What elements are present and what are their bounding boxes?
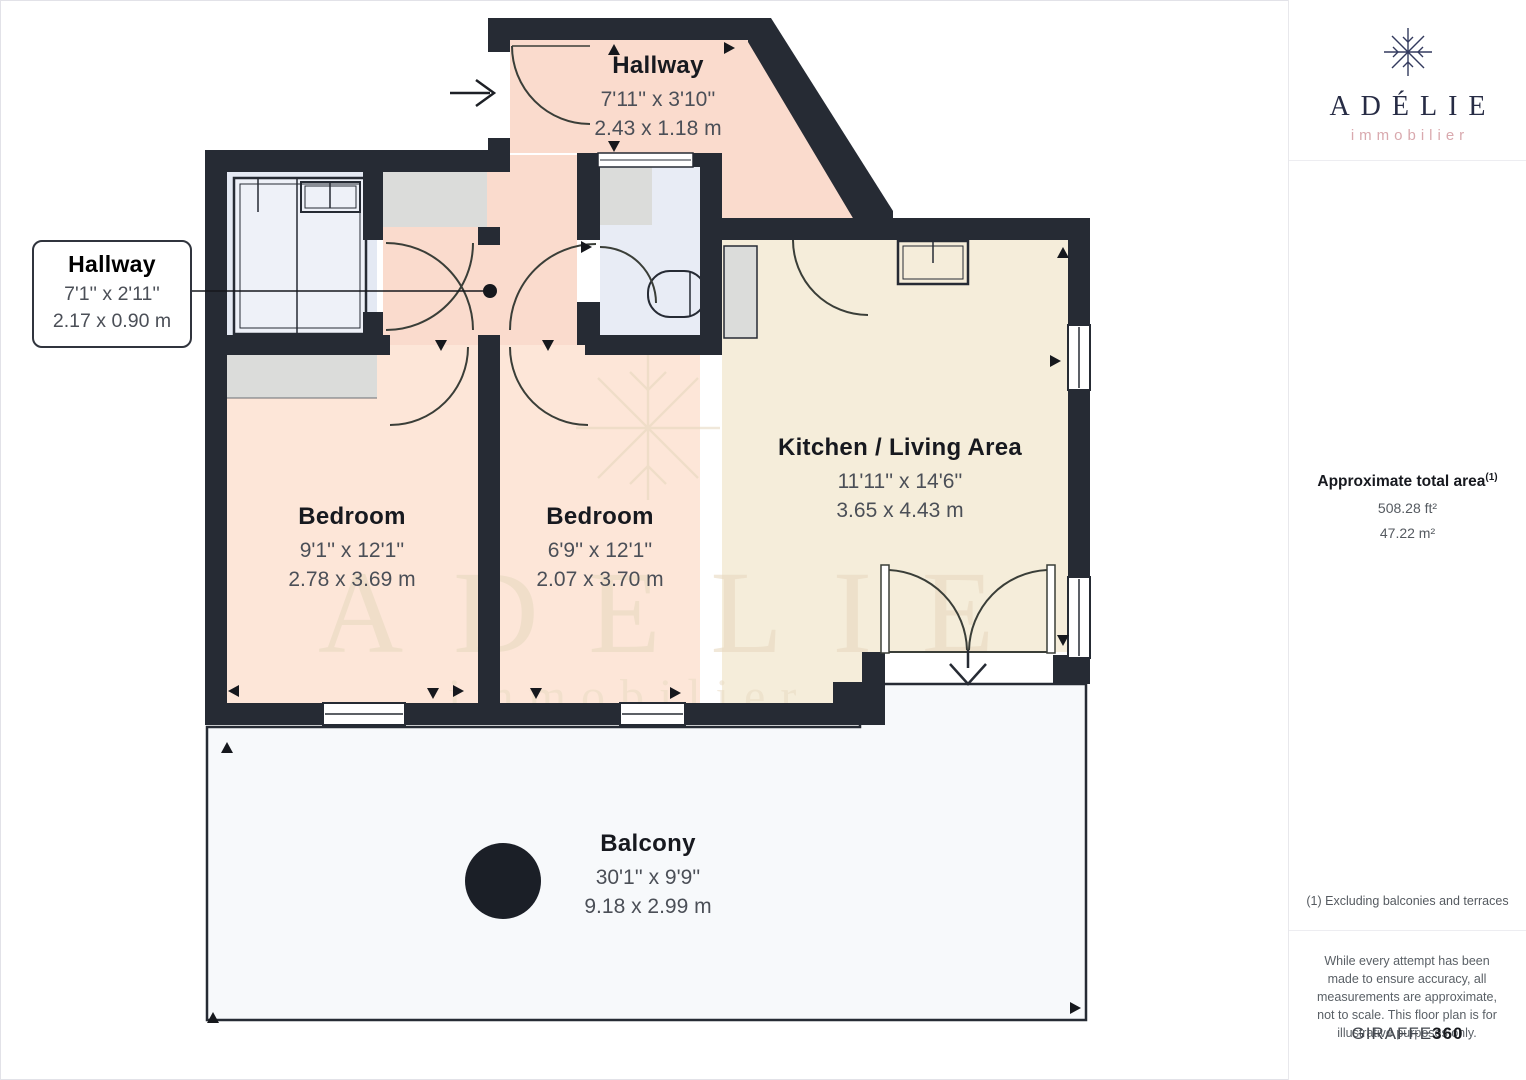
room-dim-metric: 3.65 x 4.43 m xyxy=(745,496,1055,525)
total-area-title: Approximate total area(1) xyxy=(1289,472,1526,491)
room-dim-imperial: 30'1'' x 9'9'' xyxy=(538,863,758,892)
room-label-bedroom-1: Bedroom 9'1'' x 12'1'' 2.78 x 3.69 m xyxy=(242,503,462,594)
bathroom-closet xyxy=(600,167,652,225)
room-dim-imperial: 9'1'' x 12'1'' xyxy=(242,536,462,565)
camera-point-marker xyxy=(465,843,541,919)
area-footnote: (1) Excluding balconies and terraces xyxy=(1289,894,1526,908)
room-label-kitchen-living: Kitchen / Living Area 11'11'' x 14'6'' 3… xyxy=(745,434,1055,525)
room-dim-metric: 9.18 x 2.99 m xyxy=(538,892,758,921)
total-area-ft: 508.28 ft² xyxy=(1289,500,1526,516)
total-area-m: 47.22 m² xyxy=(1289,525,1526,541)
snowflake-icon xyxy=(1382,26,1434,78)
floorplan-page: { "branding": { "name": "ADÉLIE", "tagli… xyxy=(0,0,1526,1080)
brand-name: ADÉLIE xyxy=(1289,91,1526,123)
room-title: Hallway xyxy=(543,52,773,80)
room-label-balcony: Balcony 30'1'' x 9'9'' 9.18 x 2.99 m xyxy=(538,830,758,921)
room-dim-metric: 2.43 x 1.18 m xyxy=(543,114,773,143)
entry-arrow-icon xyxy=(450,80,494,106)
room-dim-imperial: 7'1'' x 2'11'' xyxy=(34,281,190,308)
room-label-bedroom-2: Bedroom 6'9'' x 12'1'' 2.07 x 3.70 m xyxy=(490,503,710,594)
sidebar-divider xyxy=(1289,160,1526,161)
floorplan-canvas: ADELIE immobilier xyxy=(0,0,1288,1080)
provider-logo: GIRAFFE360 xyxy=(1289,1024,1526,1044)
room-label-hallway-top: Hallway 7'11'' x 3'10'' 2.43 x 1.18 m xyxy=(543,52,773,143)
sidebar-divider xyxy=(1289,930,1526,931)
total-area-block: Approximate total area(1) 508.28 ft² 47.… xyxy=(1289,472,1526,541)
room-title: Kitchen / Living Area xyxy=(745,434,1055,462)
room-callout-hallway: Hallway 7'1'' x 2'11'' 2.17 x 0.90 m xyxy=(32,240,192,348)
closet-top xyxy=(383,167,487,227)
room-title: Balcony xyxy=(538,830,758,858)
provider-name: GIRAFFE xyxy=(1351,1024,1432,1043)
brand-tagline: immobilier xyxy=(1289,127,1526,144)
room-dim-imperial: 6'9'' x 12'1'' xyxy=(490,536,710,565)
room-dim-imperial: 11'11'' x 14'6'' xyxy=(745,467,1055,496)
room-title: Hallway xyxy=(34,251,190,278)
bedroom1-closet xyxy=(227,350,377,398)
room-dim-metric: 2.07 x 3.70 m xyxy=(490,565,710,594)
bed-icon xyxy=(234,178,366,334)
counter-icon xyxy=(724,246,757,338)
sidebar: ADÉLIE immobilier Approximate total area… xyxy=(1288,0,1526,1080)
brand-logo: ADÉLIE immobilier xyxy=(1289,26,1526,144)
room-dim-metric: 2.78 x 3.69 m xyxy=(242,565,462,594)
provider-suffix: 360 xyxy=(1432,1024,1463,1043)
toilet-icon xyxy=(648,271,706,317)
room-title: Bedroom xyxy=(242,503,462,531)
room-dim-imperial: 7'11'' x 3'10'' xyxy=(543,85,773,114)
footnote-ref: (1) xyxy=(1485,472,1497,483)
room-dim-metric: 2.17 x 0.90 m xyxy=(34,308,190,335)
room-title: Bedroom xyxy=(490,503,710,531)
